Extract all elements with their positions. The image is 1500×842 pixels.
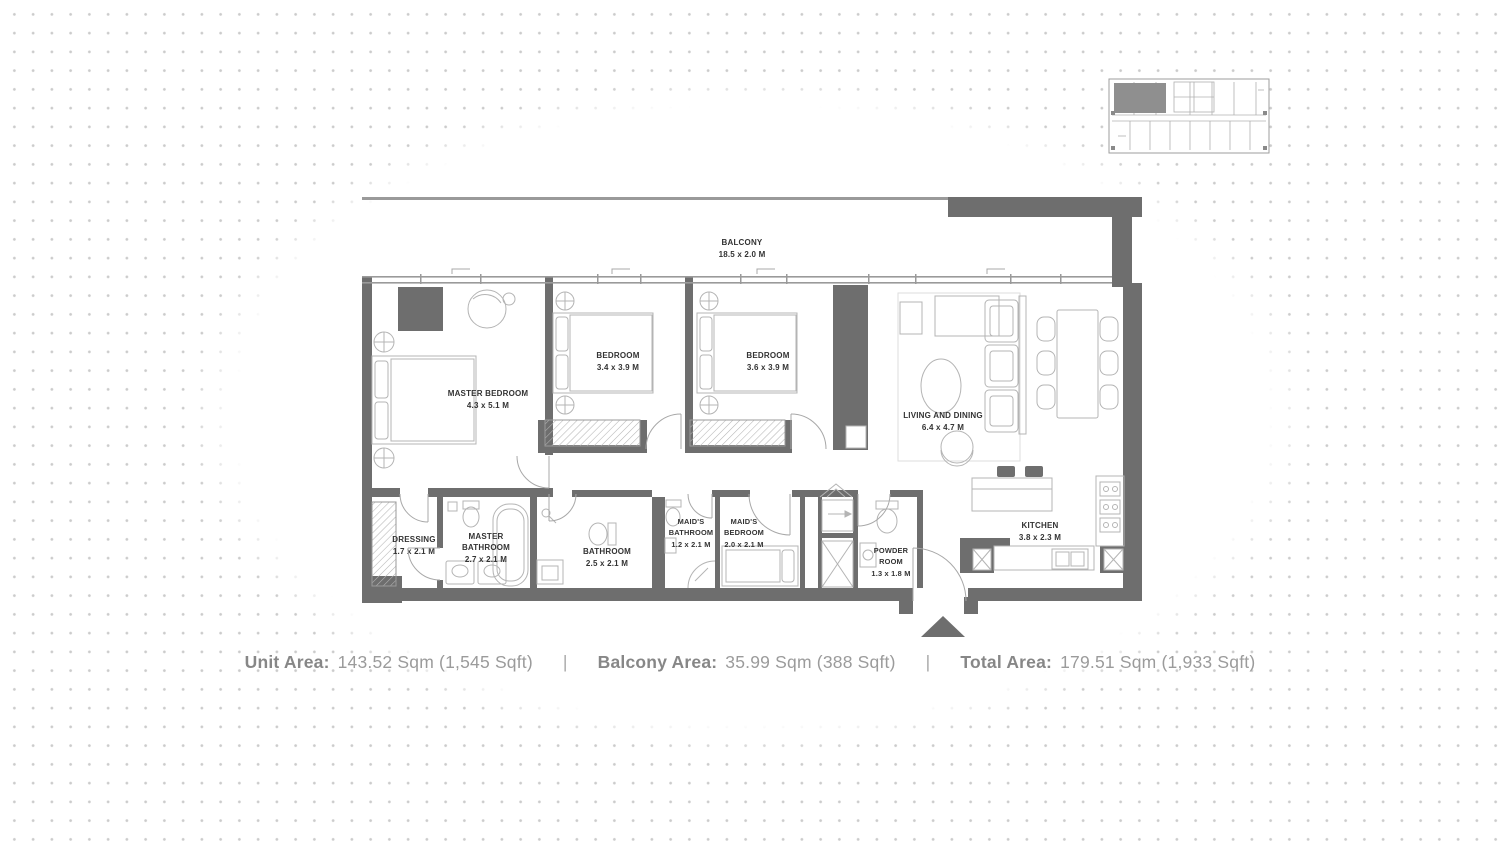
vanity-sink-icon — [537, 560, 563, 584]
wardrobe-icon — [372, 502, 396, 586]
door-arc — [791, 414, 826, 449]
svg-text:BEDROOM: BEDROOM — [596, 351, 639, 360]
svg-text:4.3 x 5.1 M: 4.3 x 5.1 M — [467, 401, 509, 410]
svg-text:1.3 x 1.8 M: 1.3 x 1.8 M — [871, 569, 910, 578]
svg-text:MAID'S: MAID'S — [731, 517, 758, 526]
svg-text:3.8 x 2.3 M: 3.8 x 2.3 M — [1019, 533, 1061, 542]
unit-area-value: 143.52 Sqm (1,545 Sqft) — [338, 652, 533, 673]
door-arc — [517, 456, 549, 488]
bed-icon — [722, 546, 798, 586]
toilet-icon — [876, 501, 898, 533]
nightstand-icon — [374, 332, 394, 352]
room-powder-room: POWDER ROOM 1.3 x 1.8 M — [858, 494, 911, 578]
svg-text:LIVING AND DINING: LIVING AND DINING — [903, 411, 983, 420]
side-table-icon — [900, 302, 922, 334]
room-balcony: BALCONY 18.5 x 2.0 M — [719, 238, 766, 259]
stove-icon — [1096, 476, 1124, 546]
room-living-dining: LIVING AND DINING 6.4 x 4.7 M — [898, 293, 1118, 466]
svg-text:KITCHEN: KITCHEN — [1022, 521, 1059, 530]
structural-column — [833, 285, 868, 450]
kitchen-sink-icon — [994, 546, 1094, 570]
svg-text:DRESSING: DRESSING — [392, 535, 435, 544]
room-maids-bathroom: MAID'S BATHROOM 1.2 x 2.1 M — [665, 494, 715, 588]
nightstand-icon — [700, 396, 718, 414]
svg-text:BATHROOM: BATHROOM — [583, 547, 631, 556]
bar-stool-icon — [997, 466, 1015, 477]
svg-text:3.6 x 3.9 M: 3.6 x 3.9 M — [747, 363, 789, 372]
door-arc — [688, 494, 712, 518]
svg-text:18.5 x 2.0 M: 18.5 x 2.0 M — [719, 250, 766, 259]
shaft-icon — [822, 541, 853, 587]
svg-text:MASTER: MASTER — [469, 532, 504, 541]
svg-text:2.0 x 2.1 M: 2.0 x 2.1 M — [724, 540, 763, 549]
nightstand-icon — [556, 396, 574, 414]
nightstand-icon — [556, 292, 574, 310]
key-plan-unit-highlight — [1114, 83, 1166, 113]
shelf-icon — [448, 502, 457, 511]
svg-text:2.7 x 2.1 M: 2.7 x 2.1 M — [465, 555, 507, 564]
svg-text:3.4 x 3.9 M: 3.4 x 3.9 M — [597, 363, 639, 372]
svg-text:MAID'S: MAID'S — [678, 517, 705, 526]
coffee-table-icon — [921, 359, 961, 413]
key-plan-thumbnail — [1108, 78, 1270, 154]
room-bathroom: BATHROOM 2.5 x 2.1 M — [537, 494, 631, 584]
kitchen-island-icon — [972, 466, 1052, 511]
armchair-icon — [468, 290, 515, 328]
toilet-icon — [463, 501, 479, 527]
closet-icon — [822, 500, 853, 531]
door-arc — [400, 494, 428, 522]
total-area-label: Total Area: — [960, 652, 1052, 673]
bed-icon — [372, 356, 476, 444]
door-arc — [646, 414, 681, 449]
wardrobe-icon — [690, 420, 785, 446]
total-area-value: 179.51 Sqm (1,933 Sqft) — [1060, 652, 1255, 673]
balcony-window-line — [362, 269, 1112, 284]
structural-column — [398, 287, 443, 331]
door-arc — [549, 494, 576, 521]
area-summary: Unit Area: 143.52 Sqm (1,545 Sqft) | Bal… — [0, 652, 1500, 673]
shower-icon — [688, 561, 715, 588]
svg-text:POWDER: POWDER — [874, 546, 909, 555]
balcony-area-label: Balcony Area: — [598, 652, 718, 673]
svg-text:BALCONY: BALCONY — [722, 238, 763, 247]
wardrobe-icon — [545, 420, 640, 446]
floor-plan-page: MASTER BEDROOM 4.3 x 5.1 M BEDROOM 3.4 x… — [0, 0, 1500, 842]
nightstand-icon — [374, 448, 394, 468]
dining-table-icon — [1057, 310, 1098, 418]
room-bedroom-3: BEDROOM 3.6 x 3.9 M — [690, 292, 826, 449]
sliding-door-marks — [452, 269, 1005, 274]
svg-text:MASTER BEDROOM: MASTER BEDROOM — [448, 389, 529, 398]
svg-text:BATHROOM: BATHROOM — [462, 543, 510, 552]
room-maids-bedroom: MAID'S BEDROOM 2.0 x 2.1 M — [722, 494, 798, 586]
floor-plan: MASTER BEDROOM 4.3 x 5.1 M BEDROOM 3.4 x… — [355, 190, 1155, 650]
balcony-area-value: 35.99 Sqm (388 Sqft) — [725, 652, 895, 673]
separator: | — [563, 652, 568, 673]
svg-text:BATHROOM: BATHROOM — [669, 528, 714, 537]
svg-text:BEDROOM: BEDROOM — [724, 528, 764, 537]
svg-text:BEDROOM: BEDROOM — [746, 351, 789, 360]
dining-chairs-icons — [1037, 317, 1118, 409]
bar-stool-icon — [1025, 466, 1043, 477]
toilet-icon — [589, 523, 616, 545]
room-bedroom-2: BEDROOM 3.4 x 3.9 M — [545, 292, 681, 449]
door-arc — [858, 494, 890, 526]
svg-text:1.2 x 2.1 M: 1.2 x 2.1 M — [671, 540, 710, 549]
room-dressing: DRESSING 1.7 x 2.1 M — [372, 494, 436, 586]
nightstand-icon — [700, 292, 718, 310]
separator: | — [926, 652, 931, 673]
entry-direction-arrow-icon — [921, 616, 965, 637]
rug-outline — [898, 293, 1020, 461]
svg-text:ROOM: ROOM — [879, 557, 903, 566]
svg-text:2.5 x 2.1 M: 2.5 x 2.1 M — [586, 559, 628, 568]
svg-text:6.4 x 4.7 M: 6.4 x 4.7 M — [922, 423, 964, 432]
unit-area-label: Unit Area: — [245, 652, 330, 673]
